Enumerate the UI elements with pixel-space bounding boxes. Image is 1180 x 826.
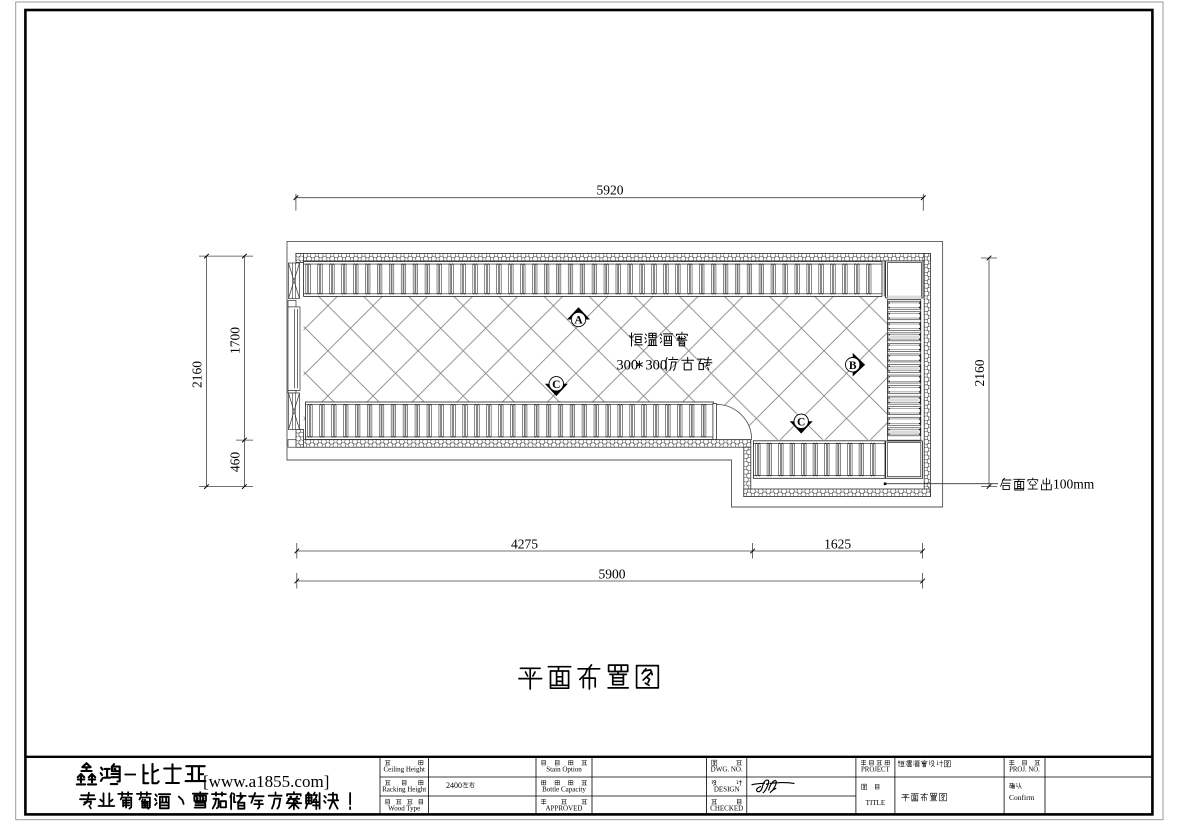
svg-text:Racking Height: Racking Height [382, 786, 426, 794]
svg-text:A: A [574, 315, 583, 327]
svg-text:PROJECT: PROJECT [861, 767, 891, 774]
svg-text:1625: 1625 [824, 537, 851, 552]
svg-text:2160: 2160 [972, 359, 987, 386]
svg-text:[www.a1855.com]: [www.a1855.com] [203, 772, 329, 791]
svg-text:460: 460 [228, 452, 243, 473]
svg-text:300: 300 [645, 358, 667, 374]
svg-text:4275: 4275 [511, 537, 538, 552]
svg-text:B: B [849, 360, 857, 372]
svg-text:2400: 2400 [446, 781, 462, 790]
svg-text:300: 300 [616, 358, 638, 374]
svg-text:2160: 2160 [190, 361, 205, 388]
svg-text:C: C [797, 416, 805, 428]
svg-text:TITLE: TITLE [866, 799, 885, 807]
svg-text:C: C [552, 379, 560, 391]
svg-text:Confirm: Confirm [1009, 793, 1035, 802]
svg-text:DESIGN: DESIGN [714, 786, 740, 794]
svg-text:APPROVED: APPROVED [546, 805, 583, 813]
svg-text:CHECKED: CHECKED [710, 805, 743, 813]
svg-text:5920: 5920 [597, 183, 624, 198]
svg-text:100mm: 100mm [1053, 477, 1095, 492]
svg-text:5900: 5900 [599, 567, 626, 582]
svg-text:Ceiling Height: Ceiling Height [383, 766, 424, 774]
svg-text:1700: 1700 [228, 327, 243, 354]
svg-text:PROJ. NO.: PROJ. NO. [1009, 767, 1040, 774]
svg-text:Bottle Capacity: Bottle Capacity [542, 786, 586, 794]
svg-text:Stain Option: Stain Option [546, 766, 582, 774]
svg-text:DWG. NO.: DWG. NO. [711, 766, 743, 774]
svg-text:Wood Type: Wood Type [388, 805, 420, 813]
